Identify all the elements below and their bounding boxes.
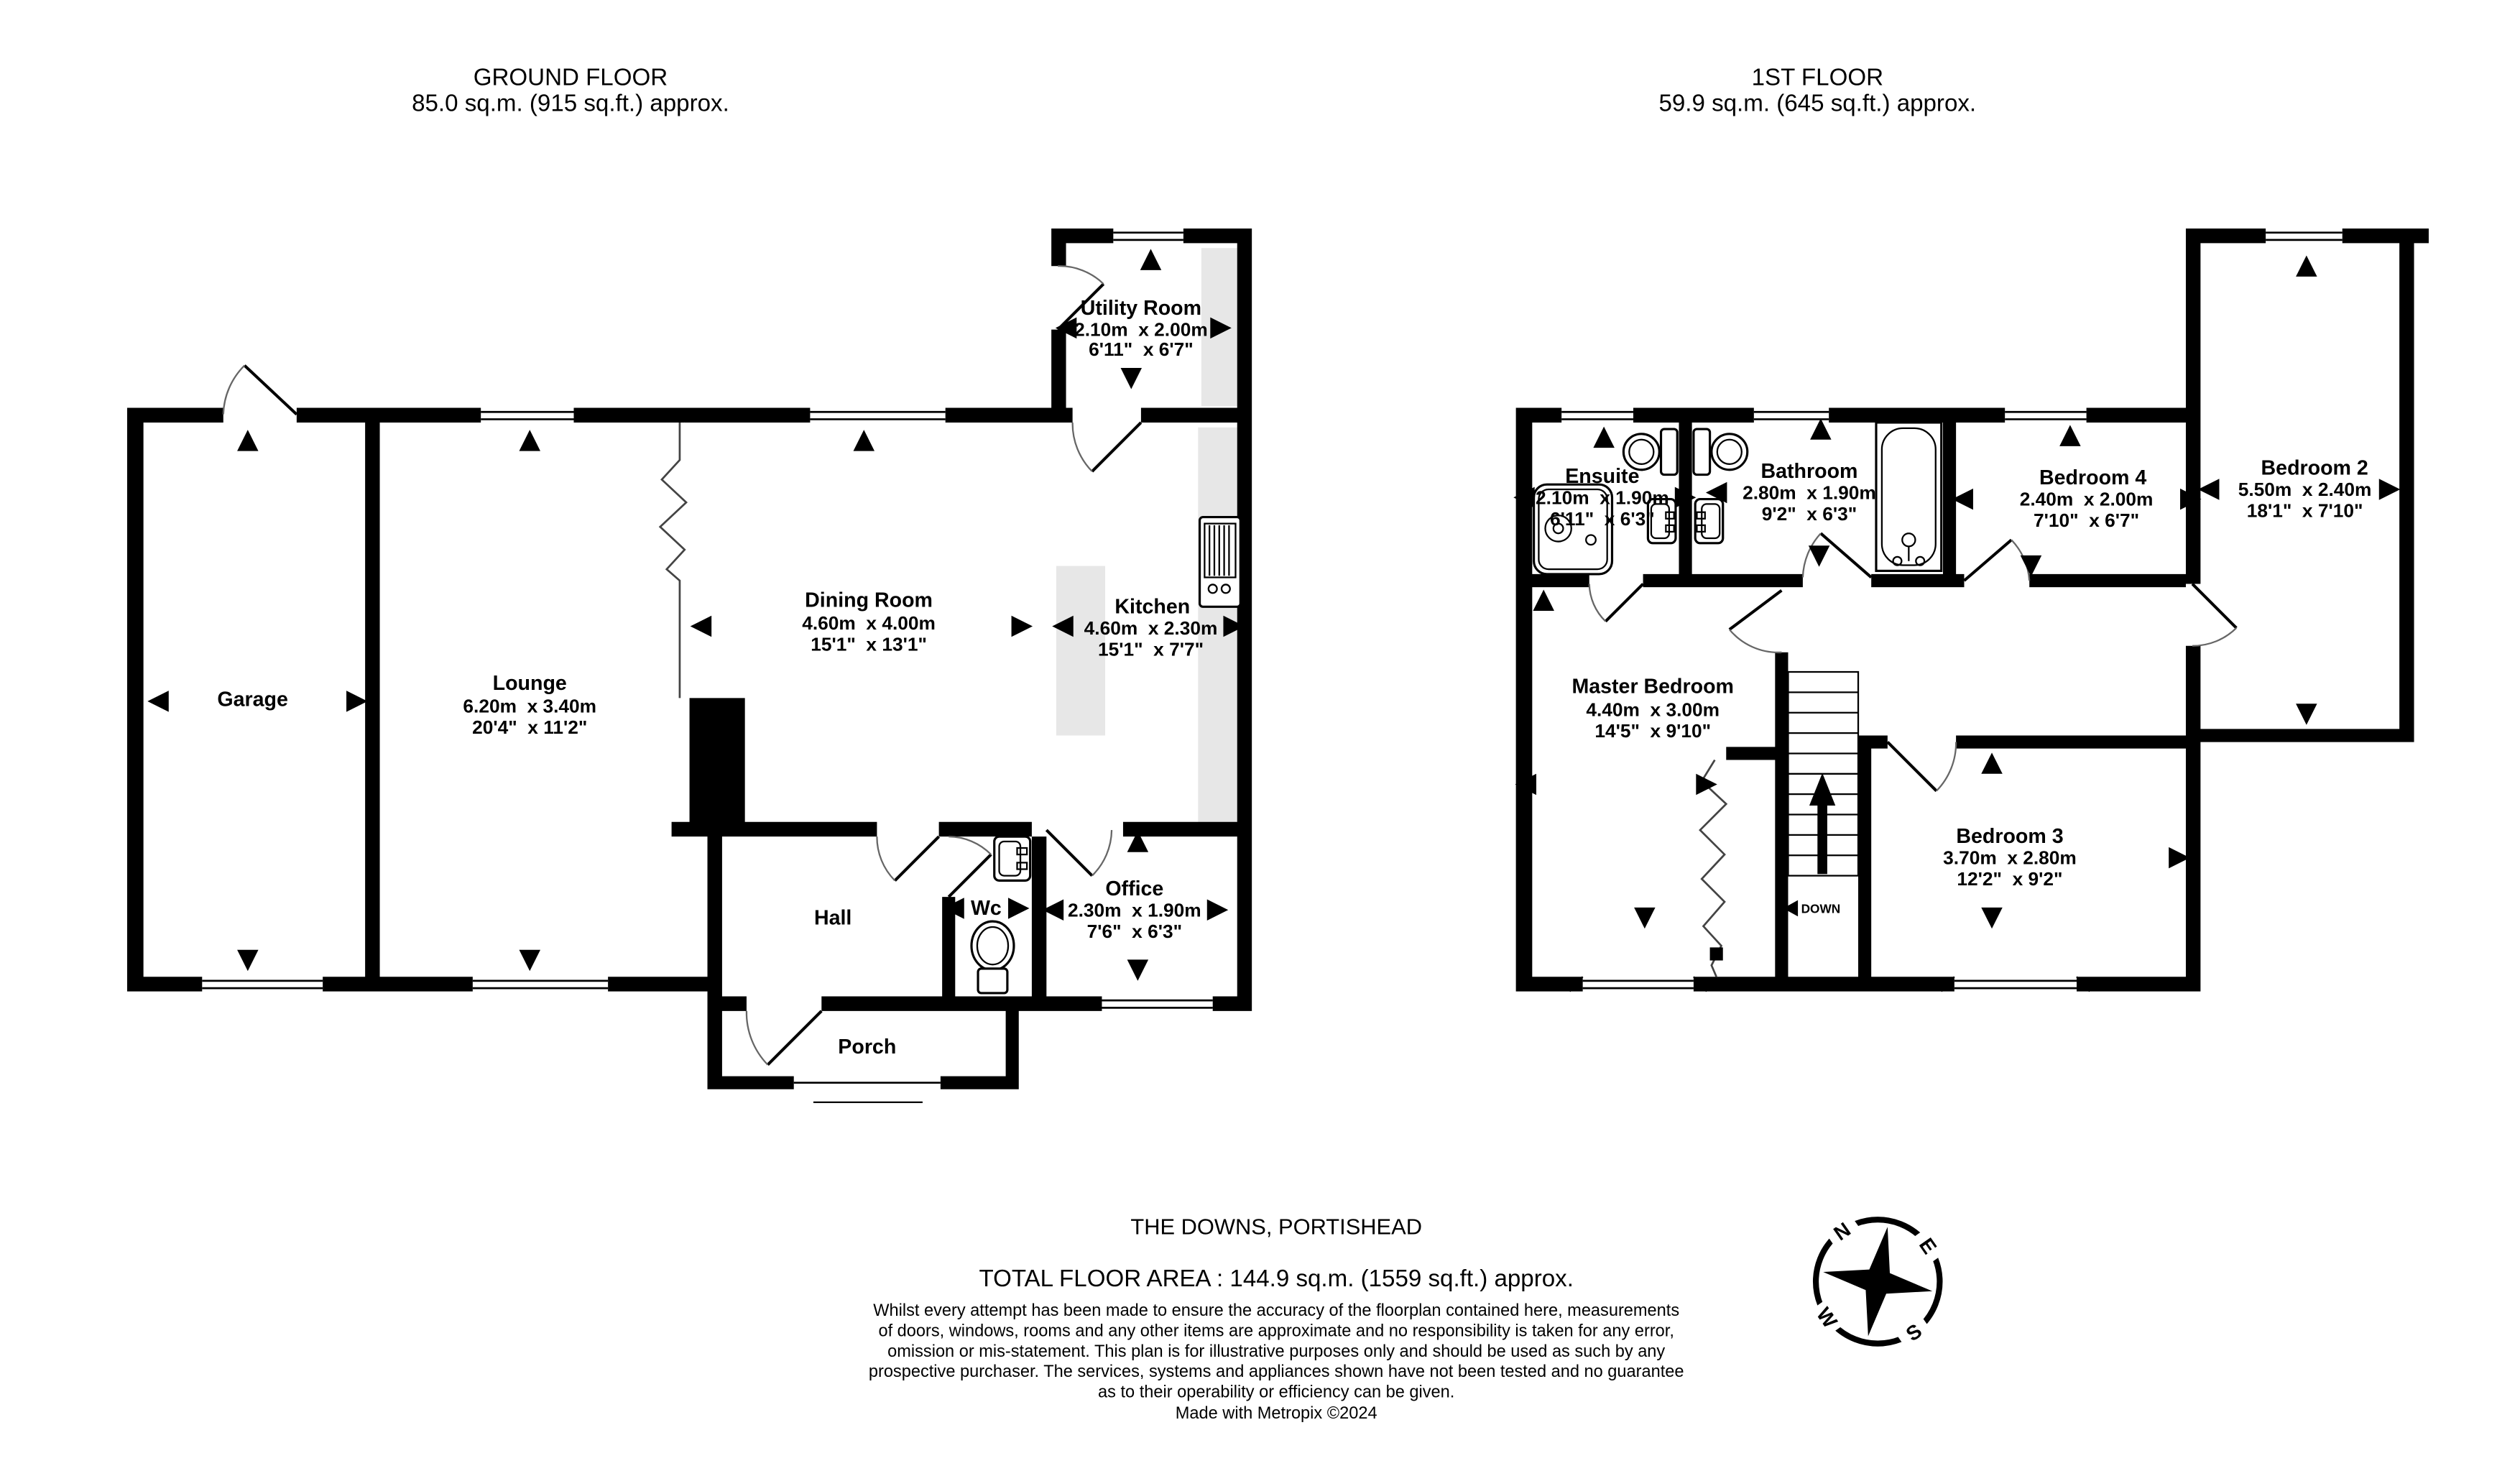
- front-door: [747, 1011, 821, 1065]
- bedroom3-metric: 3.70m x 2.80m: [1943, 847, 2077, 869]
- ground-floor-title: GROUND FLOOR: [474, 64, 668, 91]
- bedroom4-name: Bedroom 4: [2039, 466, 2146, 489]
- ensuite-label: Ensuite 2.10m x 1.90m 6'11" x 6'3": [1536, 465, 1669, 530]
- master-bedroom-label: Master Bedroom 4.40m x 3.00m 14'5" x 9'1…: [1571, 675, 1733, 742]
- hall-label: Hall: [814, 907, 851, 930]
- office-label: Office 2.30m x 1.90m 7'6" x 6'3": [1068, 877, 1201, 942]
- lounge-metric: 6.20m x 3.40m: [463, 696, 596, 717]
- office-name: Office: [1105, 877, 1163, 900]
- first-floor-plan: DOWN: [1513, 229, 2429, 992]
- garage-up-arrow: [237, 430, 258, 451]
- bedroom4-imperial: 7'10" x 6'7": [2034, 509, 2139, 531]
- bedroom3-name: Bedroom 3: [1956, 825, 2063, 848]
- utility-label: Utility Room 2.10m x 2.00m 6'11" x 6'7": [1074, 297, 1208, 360]
- bathroom-door: [1803, 533, 1871, 577]
- bedroom3-label: Bedroom 3 3.70m x 2.80m 12'2" x 9'2": [1943, 825, 2077, 890]
- staircase: DOWN: [1783, 672, 1858, 916]
- bedroom2-metric: 5.50m x 2.40m: [2238, 479, 2372, 500]
- bathroom-name: Bathroom: [1760, 460, 1857, 483]
- first-floor-title: 1ST FLOOR: [1752, 64, 1883, 91]
- utility-down-arrow: [1121, 368, 1142, 389]
- master-bedroom-window: [1570, 977, 1707, 991]
- bedroom2-label: Bedroom 2 5.50m x 2.40m 18'1" x 7'10": [2238, 457, 2372, 522]
- master-metric: 4.40m x 3.00m: [1586, 698, 1720, 720]
- garage-down-arrow: [237, 950, 258, 971]
- bedroom2-name: Bedroom 2: [2261, 457, 2368, 480]
- dining-up-arrow: [854, 430, 874, 451]
- floorplan-drawing: GROUND FLOOR 85.0 sq.m. (915 sq.ft.) app…: [0, 0, 2520, 1471]
- bathroom-label: Bathroom 2.80m x 1.90m 9'2" x 6'3": [1743, 460, 1876, 525]
- floorplan-page: GROUND FLOOR 85.0 sq.m. (915 sq.ft.) app…: [0, 0, 2520, 1471]
- lounge-bottom-window: [473, 981, 608, 988]
- disclaimer-line-3: omission or mis-statement. This plan is …: [887, 1342, 1665, 1360]
- stairs-up-arrow-head: [1809, 773, 1835, 806]
- dining-top-window: [810, 412, 945, 419]
- dining-metric: 4.60m x 4.00m: [802, 612, 936, 634]
- bedroom3-up-arrow: [1981, 752, 2002, 773]
- master-imperial: 14'5" x 9'10": [1594, 720, 1711, 742]
- bathroom-window: [1754, 412, 1829, 419]
- ensuite-name: Ensuite: [1565, 465, 1639, 488]
- floor-titles: GROUND FLOOR 85.0 sq.m. (915 sq.ft.) app…: [412, 64, 1976, 116]
- lounge-up-arrow: [519, 430, 540, 451]
- dining-left-arrow: [691, 616, 711, 637]
- bedroom2-up-arrow: [2296, 255, 2317, 276]
- utility-up-arrow: [1140, 249, 1161, 269]
- office-bottom-window: [1102, 1000, 1212, 1007]
- disclaimer-line-4: prospective purchaser. The services, sys…: [869, 1362, 1684, 1380]
- bathroom-toilet-icon: [1694, 429, 1748, 475]
- lounge-name: Lounge: [493, 672, 567, 695]
- garage-door: [223, 366, 297, 415]
- metropix-credit: Made with Metropix ©2024: [1176, 1403, 1377, 1422]
- bedroom3-window: [1942, 977, 2090, 991]
- ensuite-window: [1561, 412, 1633, 419]
- kitchen-imperial: 15'1" x 7'7": [1098, 638, 1204, 660]
- ensuite-imperial: 6'11" x 6'3": [1550, 508, 1655, 530]
- utility-kitchen-door: [1073, 423, 1141, 471]
- utility-top-window: [1113, 233, 1183, 240]
- first-floor-windows: [1561, 233, 2343, 992]
- wc-toilet-icon: [971, 921, 1014, 993]
- bathroom-metric: 2.80m x 1.90m: [1743, 482, 1876, 504]
- ensuite-metric: 2.10m x 1.90m: [1536, 487, 1669, 508]
- master-down-arrow: [1634, 908, 1655, 928]
- lounge-dining-break-line: [660, 423, 686, 698]
- dining-right-arrow: [1012, 616, 1033, 637]
- lounge-top-window: [481, 412, 573, 419]
- porch-label: Porch: [838, 1036, 896, 1059]
- bedroom2-imperial: 18'1" x 7'10": [2247, 500, 2363, 522]
- ground-floor-plan: Garage Lounge 6.20m x 3.40m 20'4" x 11'2…: [127, 229, 1252, 1102]
- bedroom4-down-arrow: [2021, 555, 2041, 576]
- garage-right-arrow: [346, 691, 367, 711]
- office-right-arrow: [1207, 899, 1228, 920]
- bedroom2-door: [2192, 584, 2236, 646]
- disclaimer-line-5: as to their operability or efficiency ca…: [1098, 1382, 1454, 1401]
- compass-rose: N E S W: [1806, 1209, 1950, 1353]
- bedroom3-door: [1888, 742, 1956, 791]
- disclaimer-line-1: Whilst every attempt has been made to en…: [873, 1301, 1679, 1319]
- garage-bottom-window: [202, 981, 323, 988]
- ensuite-up-arrow: [1593, 427, 1614, 448]
- bathroom-imperial: 9'2" x 6'3": [1762, 503, 1857, 525]
- garage-label: Garage: [217, 688, 288, 711]
- ground-floor-area: 85.0 sq.m. (915 sq.ft.) approx.: [412, 91, 729, 117]
- wc-label: Wc: [971, 897, 1002, 920]
- landing-up-arrow: [1533, 589, 1554, 610]
- master-bedroom-door: [1730, 591, 1782, 653]
- kitchen-name: Kitchen: [1114, 595, 1190, 618]
- kitchen-metric: 4.60m x 2.30m: [1084, 617, 1218, 639]
- bedroom3-imperial: 12'2" x 9'2": [1957, 868, 2062, 890]
- bedroom3-down-arrow: [1981, 908, 2002, 928]
- office-imperial: 7'6" x 6'3": [1087, 921, 1183, 942]
- office-down-arrow: [1127, 959, 1148, 980]
- footer: THE DOWNS, PORTISHEAD TOTAL FLOOR AREA :…: [869, 1214, 1684, 1422]
- bedroom2-down-arrow: [2296, 704, 2317, 724]
- dining-name: Dining Room: [805, 589, 933, 612]
- stairs-up-arrow-shaft: [1817, 803, 1827, 875]
- master-wardrobe-break-line: [1700, 760, 1726, 977]
- bathtub-icon: [1876, 423, 1942, 571]
- wc-right-arrow: [1008, 898, 1029, 918]
- bedroom4-metric: 2.40m x 2.00m: [2020, 489, 2154, 510]
- first-floor-area: 59.9 sq.m. (645 sq.ft.) approx.: [1658, 91, 1976, 117]
- master-name: Master Bedroom: [1571, 675, 1733, 698]
- dining-label: Dining Room 4.60m x 4.00m 15'1" x 13'1": [802, 589, 936, 655]
- disclaimer-line-2: of doors, windows, rooms and any other i…: [878, 1321, 1674, 1339]
- wc-sink-icon: [994, 836, 1030, 880]
- office-metric: 2.30m x 1.90m: [1068, 899, 1201, 921]
- total-floor-area: TOTAL FLOOR AREA : 144.9 sq.m. (1559 sq.…: [979, 1265, 1573, 1292]
- utility-metric: 2.10m x 2.00m: [1074, 319, 1208, 341]
- dining-hall-door: [877, 836, 938, 880]
- wc-door: [949, 836, 991, 897]
- bedroom4-up-arrow: [2059, 425, 2080, 446]
- kitchen-sink-icon: [1200, 517, 1241, 607]
- lounge-down-arrow: [519, 950, 540, 971]
- bedroom4-window: [2005, 412, 2086, 419]
- dining-imperial: 15'1" x 13'1": [811, 634, 927, 655]
- bedroom2-right-arrow: [2379, 479, 2400, 499]
- bathroom-sink-icon: [1695, 499, 1723, 543]
- porch-entrance-threshold: [794, 1083, 941, 1102]
- stairs-down-label: DOWN: [1801, 902, 1841, 916]
- bedroom4-label: Bedroom 4 2.40m x 2.00m 7'10" x 6'7": [2020, 466, 2154, 531]
- lounge-imperial: 20'4" x 11'2": [472, 716, 587, 738]
- garage-left-arrow: [147, 691, 168, 711]
- bathroom-down-arrow: [1809, 545, 1829, 566]
- lounge-label: Lounge 6.20m x 3.40m 20'4" x 11'2": [463, 672, 596, 738]
- property-address: THE DOWNS, PORTISHEAD: [1130, 1214, 1422, 1240]
- utility-name: Utility Room: [1081, 297, 1201, 320]
- bathroom-up-arrow: [1810, 418, 1831, 439]
- bedroom2-left-arrow: [2198, 479, 2219, 499]
- bedroom2-window: [2266, 233, 2343, 240]
- utility-imperial: 6'11" x 6'7": [1089, 338, 1194, 360]
- office-door: [1046, 830, 1112, 876]
- bedroom4-door: [1964, 540, 2029, 581]
- ensuite-door: [1589, 584, 1643, 622]
